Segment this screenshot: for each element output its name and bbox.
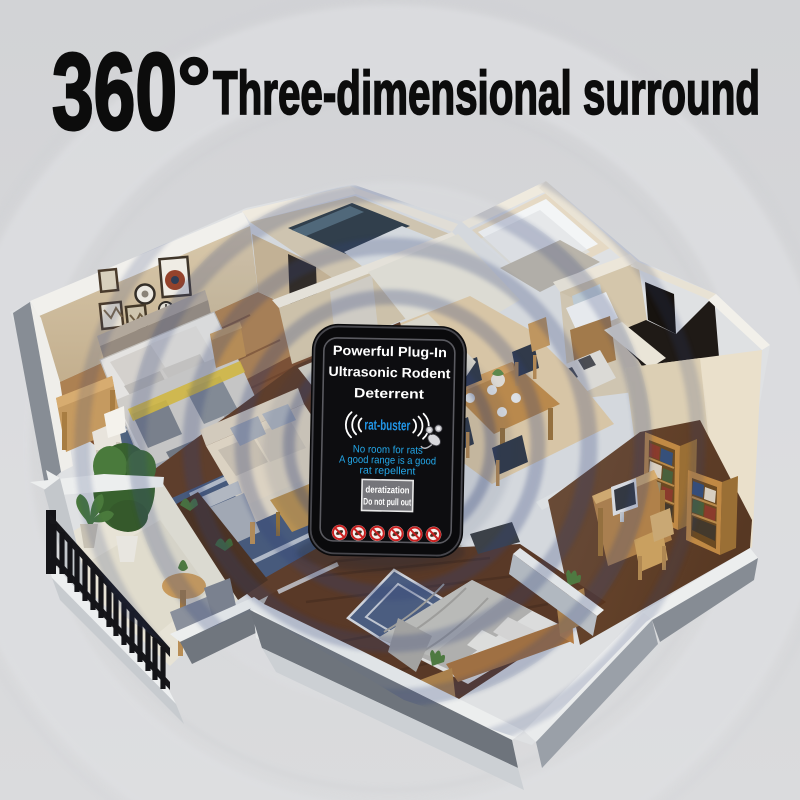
svg-text:Do not pull out: Do not pull out [363, 496, 412, 508]
svg-text:360: 360 [52, 31, 177, 153]
svg-text:deratization: deratization [365, 485, 409, 497]
svg-text:Deterrent: Deterrent [354, 385, 425, 401]
svg-text:Powerful Plug-In: Powerful Plug-In [333, 343, 447, 360]
svg-text:Three-dimensional surround: Three-dimensional surround [213, 59, 760, 127]
svg-text:rat repellent: rat repellent [359, 464, 415, 477]
svg-text:Ultrasonic Rodent: Ultrasonic Rodent [328, 364, 451, 382]
svg-text:rat-buster: rat-buster [364, 418, 411, 435]
